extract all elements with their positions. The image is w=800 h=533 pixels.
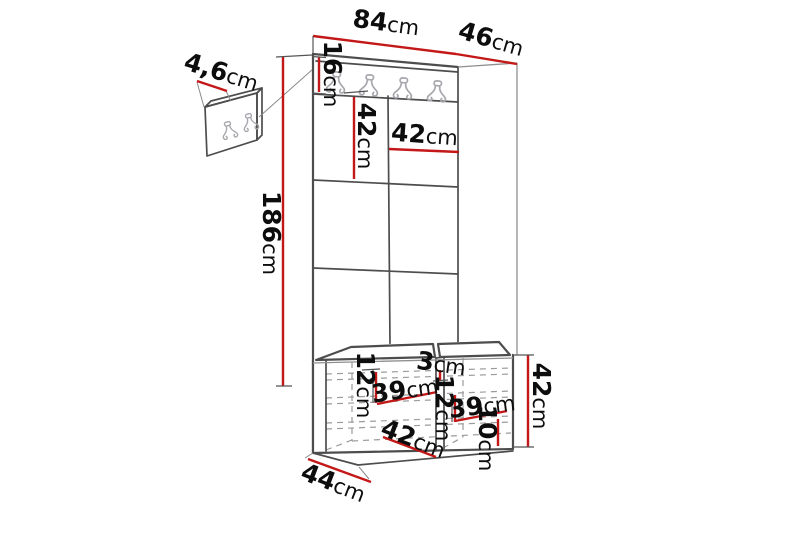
dim-total-height: 186cm (257, 191, 286, 275)
diagram-canvas: 4,6cm 84cm 46cm 16cm 42cm 42cm 186cm 12c… (0, 0, 800, 533)
dim-total-width: 84cm (351, 4, 421, 41)
dim-rail-height: 16cm (318, 41, 347, 108)
furniture-dimension-diagram: 4,6cm 84cm 46cm 16cm 42cm 42cm 186cm 12c… (0, 0, 800, 533)
dim-bench-plinth-height: 10cm (473, 405, 502, 472)
dim-panel-height: 42cm (352, 103, 381, 170)
leader-line (259, 69, 313, 117)
dim-bench-height: 42cm (527, 363, 556, 430)
